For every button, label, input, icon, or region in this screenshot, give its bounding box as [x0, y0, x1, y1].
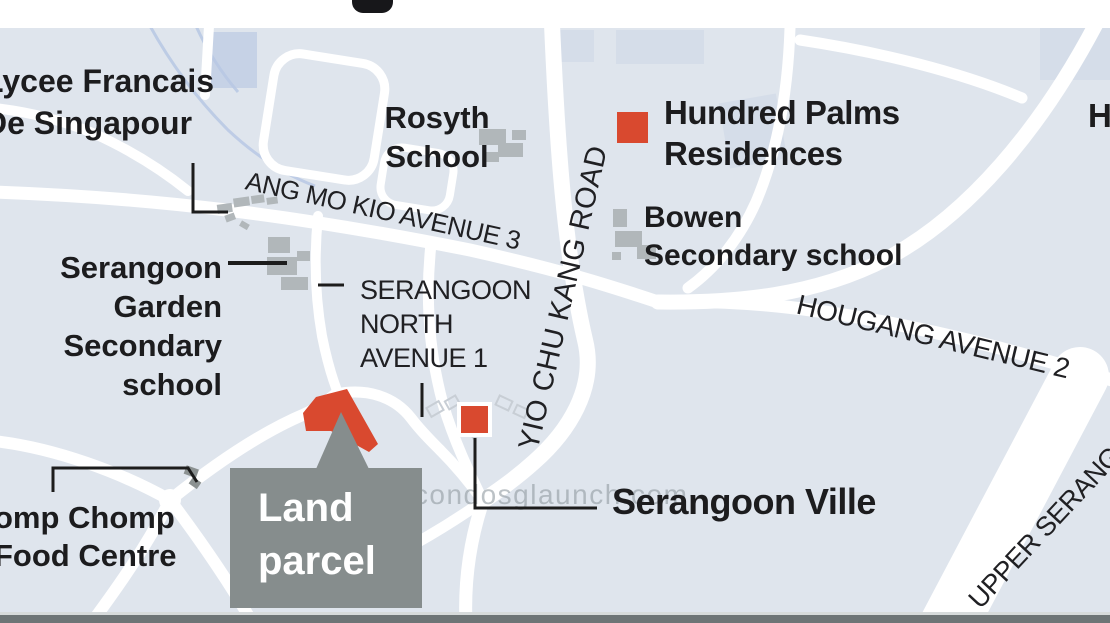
land-parcel-pointer-layer [0, 0, 1110, 623]
bottom-divider-bar [0, 615, 1110, 623]
land-parcel-pointer-icon [316, 412, 369, 469]
title-band [0, 0, 1110, 28]
land-parcel-callout-text: Land parcel [258, 482, 376, 588]
map-graphic: www.condosglaunch.com Lycee Francais De … [0, 0, 1110, 623]
land-parcel-callout-box: Land parcel [230, 468, 422, 608]
title-text-fragment [352, 0, 393, 13]
